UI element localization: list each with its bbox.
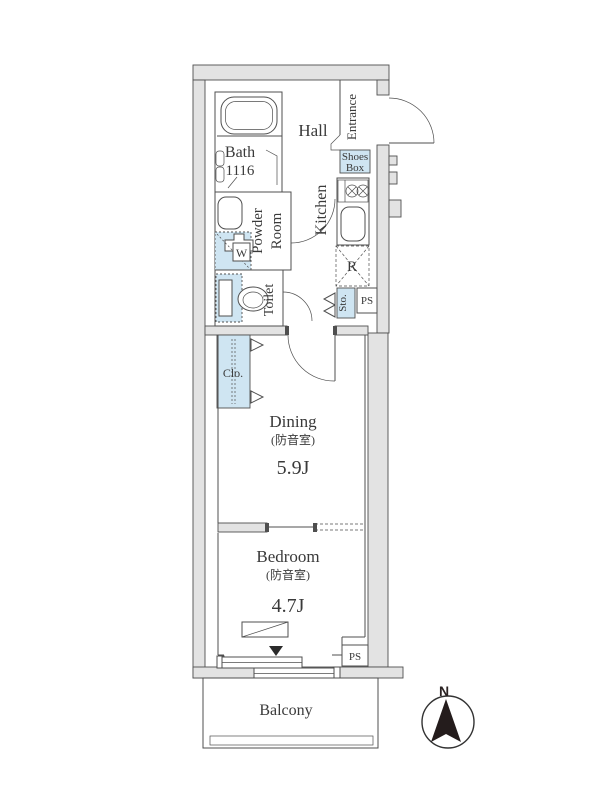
wall-partition-dining-bedroom <box>218 523 267 532</box>
partition-nub-right <box>313 523 317 532</box>
entrance-step <box>331 135 340 150</box>
compass: N <box>422 683 474 748</box>
partition-nub-left <box>265 523 269 532</box>
wall-right-upper <box>377 145 389 333</box>
dining-area-label: 5.9J <box>277 457 310 479</box>
sliding-door-dashed <box>315 524 365 530</box>
kitchen-label: Kitchen <box>313 185 330 236</box>
window-marker-triangle <box>269 646 283 656</box>
toilet-door-arc <box>283 292 312 321</box>
storage-label: Sto. <box>337 294 349 312</box>
powder-sink-icon <box>218 197 242 229</box>
dining-door-jamb-left <box>285 326 289 335</box>
bedroom-area-label: 4.7J <box>272 595 305 617</box>
floorplan-canvas: N Bath 1116 Hall Entrance Shoes Box Kitc… <box>0 0 600 800</box>
dining-label: Dining <box>269 412 317 431</box>
wall-stub-2 <box>389 172 397 184</box>
wall-stub-3 <box>389 200 401 217</box>
balcony-label: Balcony <box>259 702 312 719</box>
powder-room-label-1: Powder <box>250 208 266 254</box>
storage-folding-door <box>324 293 335 317</box>
wall-top <box>193 65 389 80</box>
wall-mid-left <box>205 326 287 335</box>
closet-door-mark-top <box>251 339 263 351</box>
shoes-box-label-2: Box <box>346 162 365 174</box>
closet-label: Clo. <box>223 366 243 380</box>
wall-left <box>193 80 205 678</box>
floorplan-svg: N Bath 1116 Hall Entrance Shoes Box Kitc… <box>0 0 600 800</box>
bedroom-note-label: (防音室) <box>266 567 310 582</box>
toilet-tank-icon <box>219 280 232 316</box>
compass-north-label: N <box>439 683 449 699</box>
entrance-door-arc <box>389 98 434 143</box>
powder-room-label-2: Room <box>269 212 285 249</box>
bath-dim-label: 1116 <box>226 163 255 179</box>
wall-stub-1 <box>389 156 397 165</box>
wall-right-above-entrance <box>377 80 389 95</box>
entrance-door <box>389 98 434 143</box>
dining-door-arc <box>288 335 335 381</box>
washer-label: W <box>236 246 248 260</box>
pipe-space-lower-label: PS <box>349 651 361 663</box>
bedroom-se-step <box>342 637 365 645</box>
dining-door <box>285 326 337 381</box>
bathtub-icon <box>221 97 277 134</box>
hall-area <box>331 80 340 150</box>
bedroom-label: Bedroom <box>256 547 319 566</box>
fridge-label: R <box>347 259 357 275</box>
bath-label: Bath <box>225 144 255 161</box>
wall-mid-right <box>335 326 368 335</box>
entrance-label: Entrance <box>344 94 359 140</box>
closet-door-mark-bottom <box>251 391 263 403</box>
kitchen-sink-icon <box>341 207 365 241</box>
pipe-space-upper-label: PS <box>361 295 373 307</box>
hall-label: Hall <box>298 121 328 140</box>
dining-note-label: (防音室) <box>271 432 315 447</box>
dining-door-jamb-right <box>333 326 337 335</box>
wall-right-lower <box>368 333 388 667</box>
toilet-label: Toilet <box>262 284 277 317</box>
